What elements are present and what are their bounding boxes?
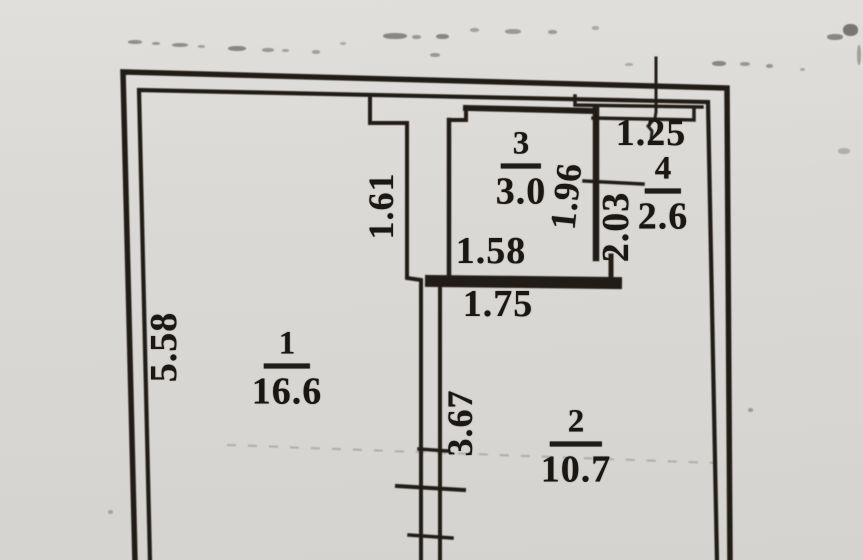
room-1-label: 1 16.6 [252,328,323,411]
room-1-number: 1 [279,328,296,361]
dim-tick-partition-lower [409,535,452,538]
room-2-label: 2 10.7 [541,406,612,489]
room-4-number: 4 [655,153,672,186]
room-2-number: 2 [568,406,585,439]
room-4-label: 4 2.6 [638,153,689,236]
dim-outer-left-wall: 5.58 [145,312,183,383]
dim-room3-right-wall: 1.96 [545,161,588,231]
dim-room1-partition-upper: 1.61 [363,173,399,240]
room-3-divider-line [501,164,541,169]
floorplan-drawing [0,0,863,560]
partition-wall-left-line [370,99,421,560]
dim-tick-partition-cross [397,486,464,490]
room-1-area: 16.6 [252,373,323,411]
room-4-area: 2.6 [638,198,689,236]
room-1-divider-line [264,364,310,369]
dim-room4-left-wall: 2.03 [597,192,635,263]
dim-room3-bottom-wall: 1.75 [463,285,534,323]
room-3-area: 3.0 [496,173,547,211]
room-2-area: 10.7 [541,451,612,489]
room-3-number: 3 [513,128,530,161]
floorplan-page: 1 16.6 2 10.7 3 3.0 4 2.6 5.58 1.61 3.67… [0,0,863,560]
room-4-divider-line [645,189,681,194]
room3-top-wall [466,108,596,111]
room-3-label: 3 3.0 [496,128,547,211]
dim-room2-partition: 3.67 [442,390,478,457]
room-2-divider-line [550,442,602,447]
dim-room3-interior-width: 1.58 [456,232,527,270]
dim-room4-top-width: 1.25 [616,114,687,152]
